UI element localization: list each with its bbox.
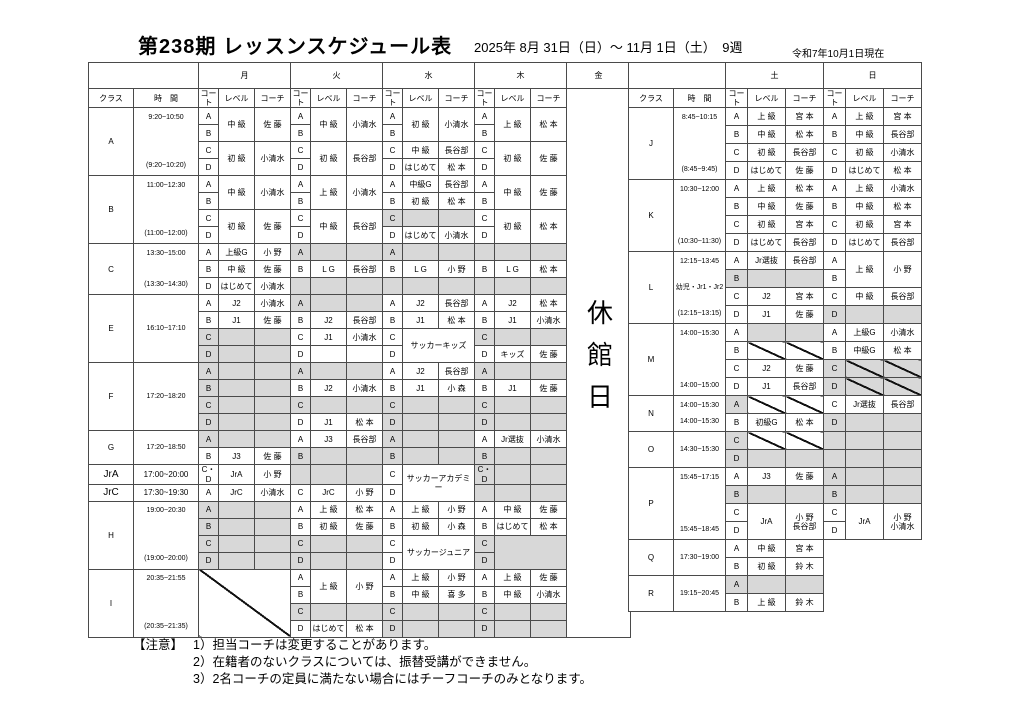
coach-cell: 佐 藤 xyxy=(255,312,291,329)
coach-cell xyxy=(884,414,922,432)
coach-cell: 長谷部 xyxy=(786,234,824,252)
court-cell: B xyxy=(199,193,219,210)
program-cell: サッカーキッズ xyxy=(403,329,475,363)
level-cell: はじめて xyxy=(495,518,531,535)
level-cell: J1 xyxy=(748,306,786,324)
coach-cell: 松 本 xyxy=(439,159,475,176)
coach-cell xyxy=(531,414,567,431)
court-cell: D xyxy=(475,159,495,176)
time-cell: 17:30~19:30 xyxy=(134,484,199,501)
coach-cell xyxy=(531,244,567,261)
level-cell: JrA xyxy=(748,504,786,540)
time-cell: 14:30~15:30 xyxy=(674,432,726,468)
court-cell: A xyxy=(291,431,311,448)
coach-cell xyxy=(786,486,824,504)
class-label: J xyxy=(629,108,674,180)
court-cell: D xyxy=(383,620,403,637)
level-cell: 上級G xyxy=(219,244,255,261)
court-cell: C xyxy=(824,144,846,162)
coach-cell: 佐 藤 xyxy=(531,380,567,397)
court-cell: C xyxy=(199,535,219,552)
level-cell: J1 xyxy=(311,414,347,431)
level-cell: 初 級 xyxy=(311,142,347,176)
lesson-schedule-page: 第238期 レッスンスケジュール表 2025年 8月 31日（日）～ 11月 1… xyxy=(0,0,1024,724)
coach-cell: 小 野 xyxy=(255,244,291,261)
coach-cell: 小 野 xyxy=(439,501,475,518)
coach-cell xyxy=(884,432,922,450)
court-cell: C xyxy=(383,142,403,159)
level-cell xyxy=(495,363,531,380)
level-cell: J1 xyxy=(495,312,531,329)
court-cell: D xyxy=(726,162,748,180)
coach-cell: 小清水 xyxy=(439,227,475,244)
level-cell xyxy=(495,414,531,431)
court-cell: D xyxy=(383,552,403,569)
court-cell: A xyxy=(199,295,219,312)
time-cell: 17:00~20:00 xyxy=(134,465,199,484)
court-cell: C xyxy=(291,535,311,552)
coach-cell: 松 本 xyxy=(531,518,567,535)
level-cell xyxy=(403,414,439,431)
coach-cell: 小 野 xyxy=(884,252,922,288)
court-cell: D xyxy=(726,306,748,324)
level-cell: J3 xyxy=(219,448,255,465)
coach-cell: 小清水 xyxy=(347,380,383,397)
court-cell: C xyxy=(199,397,219,414)
level-cell: 中級G xyxy=(403,176,439,193)
level-cell xyxy=(311,552,347,569)
coach-cell: 長谷部 xyxy=(786,252,824,270)
level-cell: 中 級 xyxy=(219,261,255,278)
court-cell: C xyxy=(824,360,846,378)
program-cell: サッカージュニア xyxy=(403,535,475,569)
court-cell: D xyxy=(199,278,219,295)
coach-cell: 松 本 xyxy=(439,312,475,329)
level-cell: 上 級 xyxy=(403,569,439,586)
coach-cell xyxy=(255,346,291,363)
level-cell: 初 級 xyxy=(748,558,786,576)
note-item: 3）2名コーチの定員に満たない場合にはチーフコーチのみとなります。 xyxy=(193,671,592,688)
level-cell: 中 級 xyxy=(846,288,884,306)
level-cell xyxy=(219,535,255,552)
court-cell: B xyxy=(383,586,403,603)
court-cell: A xyxy=(199,108,219,125)
class-label: B xyxy=(89,176,134,244)
court-cell: B xyxy=(726,558,748,576)
class-label: Q xyxy=(629,540,674,576)
coach-cell: 長谷部 xyxy=(884,126,922,144)
column-header-coach: コーチ xyxy=(531,89,567,108)
level-cell xyxy=(311,363,347,380)
court-cell: B xyxy=(475,448,495,465)
court-cell: C・D xyxy=(475,465,495,484)
level-cell: 初 級 xyxy=(495,142,531,176)
coach-cell xyxy=(347,244,383,261)
coach-cell: 長谷部 xyxy=(439,363,475,380)
coach-cell: 佐 藤 xyxy=(531,501,567,518)
court-cell: B xyxy=(291,448,311,465)
column-header-time: 時 間 xyxy=(134,89,199,108)
court-cell: B xyxy=(291,312,311,329)
court-cell: D xyxy=(726,450,748,468)
court-cell: A xyxy=(475,295,495,312)
court-cell: D xyxy=(475,414,495,431)
level-cell xyxy=(311,278,347,295)
court-cell: A xyxy=(199,176,219,193)
level-cell: 中 級 xyxy=(495,176,531,210)
level-cell: J3 xyxy=(311,431,347,448)
level-cell: 中 級 xyxy=(495,586,531,603)
court-cell: D xyxy=(291,159,311,176)
court-cell: C xyxy=(291,397,311,414)
coach-cell: 松 本 xyxy=(347,414,383,431)
court-cell: A xyxy=(383,244,403,261)
level-cell xyxy=(403,397,439,414)
coach-cell: 松 本 xyxy=(884,342,922,360)
time-cell: 16:10~17:10 xyxy=(134,295,199,363)
court-cell: A xyxy=(824,180,846,198)
court-cell: C xyxy=(475,397,495,414)
time-cell: 17:30~19:00 xyxy=(674,540,726,576)
level-cell: 初 級 xyxy=(403,193,439,210)
court-cell: B xyxy=(475,518,495,535)
court-cell: C xyxy=(475,603,495,620)
coach-cell: 長谷部 xyxy=(786,378,824,396)
level-cell: 中 級 xyxy=(846,198,884,216)
coach-cell: 小 野 xyxy=(255,465,291,484)
level-cell xyxy=(219,346,255,363)
court-cell: C xyxy=(383,465,403,484)
level-cell: 初 級 xyxy=(846,216,884,234)
coach-cell xyxy=(531,465,567,484)
coach-cell: 小清水 xyxy=(531,312,567,329)
court-cell: C xyxy=(383,535,403,552)
court-cell: C xyxy=(726,432,748,450)
coach-cell: 佐 藤 xyxy=(255,108,291,142)
coach-cell xyxy=(531,278,567,295)
class-label: O xyxy=(629,432,674,468)
level-cell: J2 xyxy=(219,295,255,312)
court-cell: B xyxy=(199,518,219,535)
coach-cell xyxy=(255,535,291,552)
coach-cell: 小 野 xyxy=(439,569,475,586)
term-date-range: 2025年 8月 31日（日）～ 11月 1日（土） 9週 xyxy=(474,37,743,56)
level-cell xyxy=(219,363,255,380)
level-cell: 中 級 xyxy=(311,210,347,244)
court-cell: A xyxy=(726,576,748,594)
level-cell: キッズ xyxy=(495,346,531,363)
level-cell xyxy=(311,346,347,363)
court-cell xyxy=(475,244,495,261)
court-cell: C xyxy=(199,142,219,159)
court-cell: D xyxy=(383,346,403,363)
level-cell xyxy=(846,360,884,378)
level-cell: JrA xyxy=(846,504,884,540)
coach-cell xyxy=(786,576,824,594)
court-cell: D xyxy=(291,620,311,637)
header-blank xyxy=(89,63,199,89)
time-cell: 13:30~15:00(13:30~14:30) xyxy=(134,244,199,295)
level-cell xyxy=(403,431,439,448)
coach-cell xyxy=(439,414,475,431)
day-header: 月 xyxy=(199,63,291,89)
court-cell: D xyxy=(199,552,219,569)
note-item: 1）担当コーチは変更することがあります。 xyxy=(193,637,592,654)
coach-cell xyxy=(884,450,922,468)
column-header-level: レベル xyxy=(846,89,884,108)
coach-cell xyxy=(439,244,475,261)
class-label: K xyxy=(629,180,674,252)
court-cell: C xyxy=(475,210,495,227)
coach-cell: 松 本 xyxy=(786,180,824,198)
court-cell: C xyxy=(291,329,311,346)
coach-cell xyxy=(786,270,824,288)
time-cell: 9:20~10:50(9:20~10:20) xyxy=(134,108,199,176)
column-header-level: レベル xyxy=(219,89,255,108)
level-cell: 中 級 xyxy=(846,126,884,144)
coach-cell: 佐 藤 xyxy=(531,176,567,210)
court-cell: B xyxy=(824,198,846,216)
coach-cell xyxy=(884,360,922,378)
coach-cell: 佐 藤 xyxy=(786,468,824,486)
court-cell: B xyxy=(475,125,495,142)
level-cell: L G xyxy=(403,261,439,278)
coach-cell: 長谷部 xyxy=(347,142,383,176)
court-cell: C xyxy=(475,142,495,159)
court-cell xyxy=(475,484,495,501)
court-cell: B xyxy=(383,193,403,210)
court-cell: B xyxy=(199,448,219,465)
court-cell: C xyxy=(726,288,748,306)
level-cell xyxy=(403,244,439,261)
court-cell: C xyxy=(726,216,748,234)
level-cell: 中 級 xyxy=(748,540,786,558)
coach-cell: 佐 藤 xyxy=(255,448,291,465)
level-cell: 初 級 xyxy=(846,144,884,162)
column-header-time: 時 間 xyxy=(674,89,726,108)
coach-cell: 宮 本 xyxy=(786,108,824,126)
coach-cell xyxy=(255,552,291,569)
court-cell: A xyxy=(199,431,219,448)
court-cell: B xyxy=(726,594,748,612)
coach-cell: 小清水 xyxy=(255,484,291,501)
coach-cell: 宮 本 xyxy=(786,216,824,234)
court-cell: D xyxy=(824,378,846,396)
level-cell xyxy=(219,518,255,535)
coach-cell: 長谷部 xyxy=(347,431,383,448)
level-cell xyxy=(748,432,786,450)
coach-cell xyxy=(347,552,383,569)
coach-cell xyxy=(255,414,291,431)
coach-cell: 佐 藤 xyxy=(786,360,824,378)
court-cell: D xyxy=(475,227,495,244)
level-cell: 中 級 xyxy=(748,126,786,144)
coach-cell: 長谷部 xyxy=(439,295,475,312)
court-cell: B xyxy=(199,312,219,329)
level-cell xyxy=(846,414,884,432)
coach-cell xyxy=(347,448,383,465)
coach-cell xyxy=(531,484,567,501)
coach-cell: 長谷部 xyxy=(439,142,475,159)
level-cell xyxy=(748,450,786,468)
level-cell xyxy=(495,620,531,637)
column-header-court: コート xyxy=(824,89,846,108)
level-cell: はじめて xyxy=(748,162,786,180)
coach-cell: 松 本 xyxy=(531,261,567,278)
level-cell: 初 級 xyxy=(219,210,255,244)
no-class-block xyxy=(199,569,291,637)
court-cell xyxy=(475,278,495,295)
coach-cell xyxy=(347,465,383,484)
court-cell: D xyxy=(824,414,846,432)
coach-cell xyxy=(255,431,291,448)
court-cell: B xyxy=(383,518,403,535)
coach-cell: 小清水 xyxy=(439,108,475,142)
coach-cell: 宮 本 xyxy=(884,108,922,126)
court-cell: D xyxy=(824,234,846,252)
court-cell: A xyxy=(824,108,846,126)
level-cell xyxy=(748,486,786,504)
coach-cell: 松 本 xyxy=(884,162,922,180)
page-title: 第238期 レッスンスケジュール表 xyxy=(138,30,452,59)
court-cell: A xyxy=(291,244,311,261)
level-cell xyxy=(219,552,255,569)
level-cell: J1 xyxy=(311,329,347,346)
coach-cell xyxy=(786,342,824,360)
level-cell xyxy=(219,380,255,397)
coach-cell: 佐 藤 xyxy=(531,569,567,586)
level-cell xyxy=(748,396,786,414)
level-cell xyxy=(311,448,347,465)
court-cell: D xyxy=(475,620,495,637)
time-cell: 17:20~18:50 xyxy=(134,431,199,465)
court-cell: C xyxy=(726,360,748,378)
level-cell xyxy=(495,603,531,620)
level-cell: はじめて xyxy=(219,278,255,295)
level-cell xyxy=(495,448,531,465)
court-cell: B xyxy=(383,125,403,142)
level-cell: J1 xyxy=(403,312,439,329)
level-cell: 上級G xyxy=(846,324,884,342)
court-cell: B xyxy=(475,193,495,210)
day-header: 水 xyxy=(383,63,475,89)
coach-cell: 佐 藤 xyxy=(347,518,383,535)
coach-cell xyxy=(347,397,383,414)
court-cell xyxy=(291,278,311,295)
as-of-date: 令和7年10月1日現在 xyxy=(792,45,884,60)
coach-cell: 松 本 xyxy=(531,108,567,142)
day-header: 木 xyxy=(475,63,567,89)
level-cell: 上 級 xyxy=(311,176,347,210)
level-cell: J2 xyxy=(311,312,347,329)
level-cell: はじめて xyxy=(846,234,884,252)
level-cell: はじめて xyxy=(311,620,347,637)
level-cell: 初 級 xyxy=(495,210,531,244)
coach-cell: 小 森 xyxy=(439,518,475,535)
coach-cell xyxy=(347,535,383,552)
coach-cell xyxy=(347,346,383,363)
court-cell: D xyxy=(291,346,311,363)
court-cell: C xyxy=(199,210,219,227)
court-cell xyxy=(824,432,846,450)
court-cell: C xyxy=(383,603,403,620)
level-cell: 上 級 xyxy=(846,108,884,126)
class-label: M xyxy=(629,324,674,396)
coach-cell: 松 本 xyxy=(347,501,383,518)
level-cell: L G xyxy=(495,261,531,278)
court-cell: B xyxy=(291,125,311,142)
level-cell: 初級G xyxy=(748,414,786,432)
court-cell: B xyxy=(726,414,748,432)
court-cell: C xyxy=(291,603,311,620)
court-cell: A xyxy=(383,363,403,380)
class-label: I xyxy=(89,569,134,637)
coach-cell: 佐 藤 xyxy=(531,142,567,176)
court-cell: D xyxy=(291,227,311,244)
level-cell: 上 級 xyxy=(495,569,531,586)
level-cell xyxy=(846,306,884,324)
coach-cell xyxy=(531,363,567,380)
level-cell xyxy=(219,431,255,448)
coach-cell xyxy=(255,518,291,535)
coach-cell xyxy=(531,448,567,465)
coach-cell: 小 野 xyxy=(439,261,475,278)
level-cell: Jr選抜 xyxy=(846,396,884,414)
coach-cell xyxy=(531,397,567,414)
coach-cell: 小清水 xyxy=(255,278,291,295)
coach-cell: 佐 藤 xyxy=(786,198,824,216)
coach-cell: 小清水 xyxy=(347,329,383,346)
court-cell: A xyxy=(291,176,311,193)
level-cell xyxy=(219,501,255,518)
class-label: G xyxy=(89,431,134,465)
coach-cell: 長谷部 xyxy=(439,176,475,193)
day-header: 火 xyxy=(291,63,383,89)
column-header-level: レベル xyxy=(403,89,439,108)
level-cell: 初 級 xyxy=(311,518,347,535)
level-cell xyxy=(495,484,531,501)
court-cell: A xyxy=(726,252,748,270)
coach-cell: 小清水 xyxy=(884,180,922,198)
coach-cell xyxy=(884,378,922,396)
level-cell: J3 xyxy=(748,468,786,486)
coach-cell xyxy=(531,620,567,637)
court-cell: A xyxy=(726,396,748,414)
court-cell: A xyxy=(291,295,311,312)
court-cell: B xyxy=(199,380,219,397)
level-cell xyxy=(495,329,531,346)
coach-cell xyxy=(531,603,567,620)
coach-cell xyxy=(884,468,922,486)
court-cell: C・D xyxy=(199,465,219,484)
court-cell: D xyxy=(199,227,219,244)
level-cell xyxy=(846,432,884,450)
court-cell: C xyxy=(824,396,846,414)
level-cell xyxy=(748,324,786,342)
court-cell: A xyxy=(475,176,495,193)
column-header-court: コート xyxy=(475,89,495,108)
coach-cell: 長谷部 xyxy=(884,396,922,414)
class-label: E xyxy=(89,295,134,363)
court-cell: A xyxy=(291,363,311,380)
court-cell: C xyxy=(726,504,748,522)
time-cell: 14:00~15:3014:00~15:30 xyxy=(674,396,726,432)
coach-cell xyxy=(255,363,291,380)
court-cell: B xyxy=(475,261,495,278)
header-blank xyxy=(629,63,726,89)
level-cell: J2 xyxy=(403,295,439,312)
class-label: N xyxy=(629,396,674,432)
